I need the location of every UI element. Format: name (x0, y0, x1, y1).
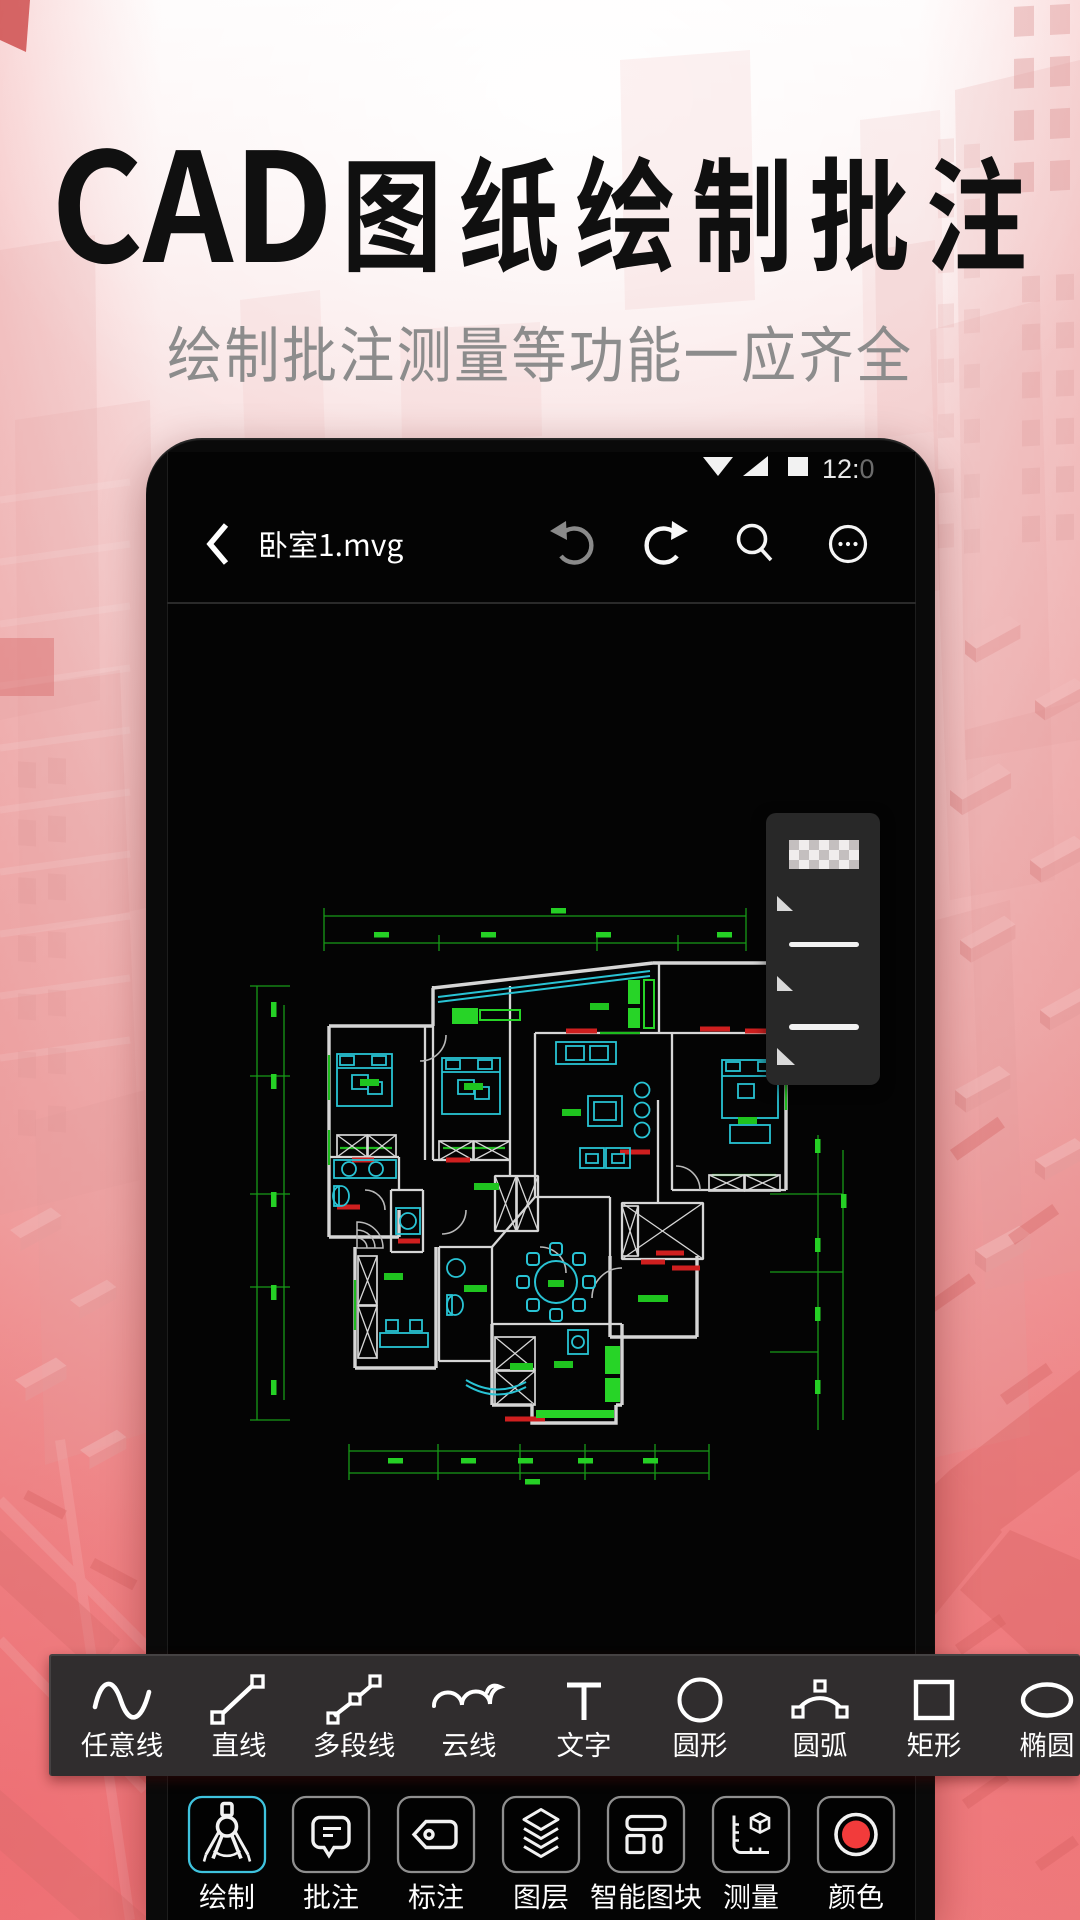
svg-text:12:0: 12:0 (822, 454, 875, 484)
